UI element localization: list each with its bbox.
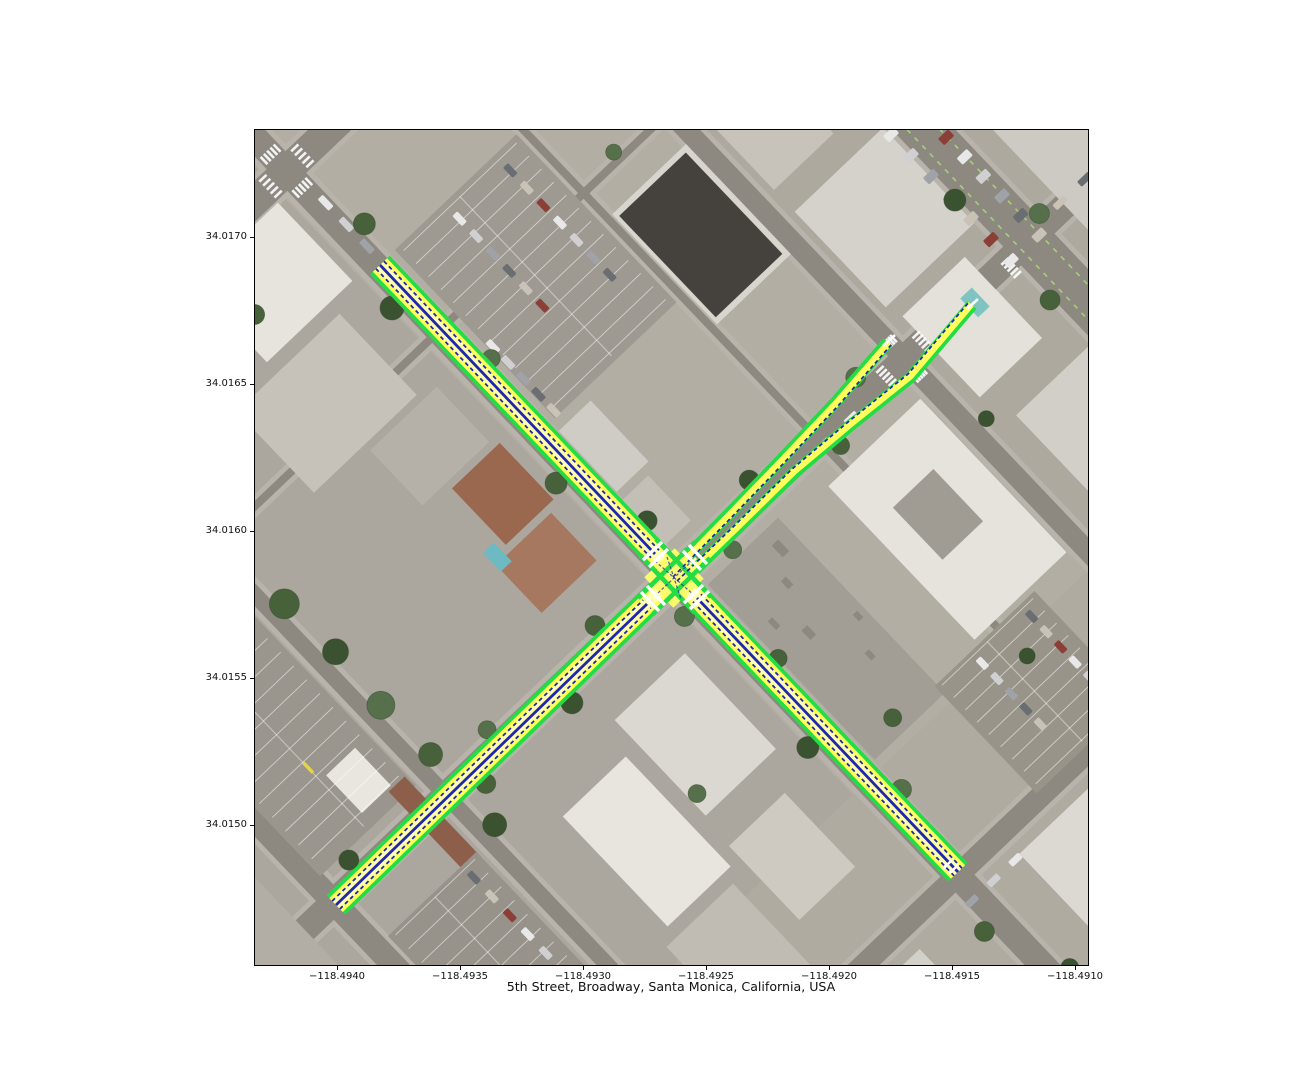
y-tick-label: 34.0160: [181, 525, 247, 536]
matplotlib-figure: 34.017034.016534.016034.015534.0150 −118…: [0, 0, 1302, 1080]
x-axis-label: 5th Street, Broadway, Santa Monica, Cali…: [411, 979, 931, 994]
y-tick-label: 34.0170: [181, 231, 247, 242]
y-tick-label: 34.0155: [181, 672, 247, 683]
y-tick-label: 34.0150: [181, 819, 247, 830]
x-tick-mark: [829, 966, 830, 970]
y-tick-mark: [250, 237, 254, 238]
y-tick-label: 34.0165: [181, 378, 247, 389]
x-tick-mark: [706, 966, 707, 970]
y-tick-mark: [250, 384, 254, 385]
plot-area: [254, 129, 1089, 966]
satellite-basemap: [255, 130, 1088, 965]
x-tick-mark: [460, 966, 461, 970]
x-tick-mark: [583, 966, 584, 970]
y-tick-mark: [250, 531, 254, 532]
y-tick-mark: [250, 825, 254, 826]
x-tick-mark: [337, 966, 338, 970]
satellite-map-canvas: [255, 130, 1088, 965]
x-tick-label: −118.4940: [297, 971, 377, 982]
x-tick-label: −118.4910: [1035, 971, 1115, 982]
x-tick-mark: [1075, 966, 1076, 970]
x-tick-mark: [952, 966, 953, 970]
y-tick-mark: [250, 678, 254, 679]
